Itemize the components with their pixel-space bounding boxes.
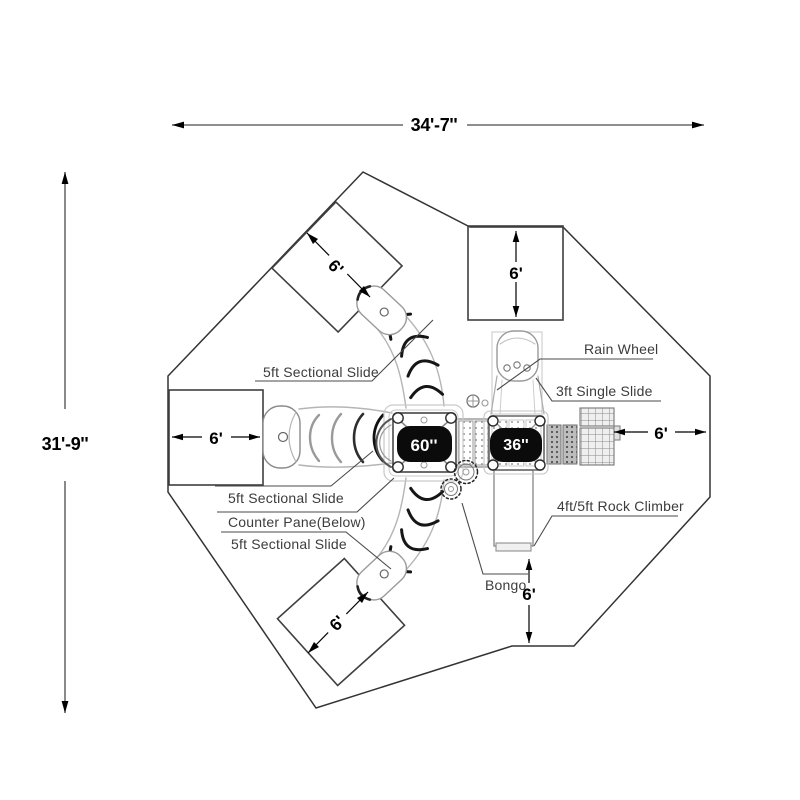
arrowhead-left xyxy=(172,122,184,129)
rock-climber-base-bar xyxy=(496,543,531,551)
slide-left-sectional xyxy=(263,406,392,468)
deck-post xyxy=(488,416,498,426)
callout-slide-upper: 5ft Sectional Slide xyxy=(255,320,433,381)
deck-post xyxy=(393,462,403,472)
callout-slide-lower-text: 5ft Sectional Slide xyxy=(231,536,347,552)
callout-single-slide-text: 3ft Single Slide xyxy=(556,383,653,399)
dimension-right: 6' xyxy=(614,420,706,443)
single-slide-hood xyxy=(491,331,544,414)
dimension-overall-height: 31'-9'' xyxy=(42,172,89,713)
rock-climber-column xyxy=(494,470,533,546)
arrowhead-right xyxy=(692,122,704,129)
play-structure: 60'' 36'' xyxy=(263,279,620,607)
dimension-left-square: 6' xyxy=(172,425,260,448)
activity-panels xyxy=(547,425,577,464)
right-dim-text: 6' xyxy=(654,424,668,443)
dimension-upper-diamond: 6' xyxy=(307,233,370,297)
rock-climber-panel xyxy=(580,408,620,465)
overall-width-text: 34'-7'' xyxy=(411,115,458,135)
deck-post xyxy=(535,460,545,470)
deck-36: 36'' xyxy=(484,411,548,474)
callout-rock-climber: 4ft/5ft Rock Climber xyxy=(534,498,684,546)
callout-counter-pane-text: Counter Pane(Below) xyxy=(228,514,366,530)
deck-36-label: 36'' xyxy=(503,437,528,454)
deck-60-label: 60'' xyxy=(411,436,438,455)
callout-slide-left-text: 5ft Sectional Slide xyxy=(228,490,344,506)
playground-plan-drawing: 60'' 36'' xyxy=(0,0,800,800)
dimension-lower-diamond: 6' xyxy=(308,592,368,653)
slide-upper-sectional xyxy=(350,279,444,408)
arrowhead-down xyxy=(62,701,69,713)
overall-height-text: 31'-9'' xyxy=(42,434,89,454)
callout-rain-wheel-text: Rain Wheel xyxy=(584,341,658,357)
top-square-dim-text: 6' xyxy=(509,264,523,283)
callout-slide-lower: 5ft Sectional Slide xyxy=(221,532,391,569)
slide-upper-exit xyxy=(350,279,413,341)
dimension-bottom: 6' xyxy=(517,559,541,643)
deck-60: 60'' xyxy=(384,405,463,481)
dimension-overall-width: 34'-7'' xyxy=(172,115,704,135)
left-square-dim-text: 6' xyxy=(209,429,223,448)
deck-post xyxy=(393,413,403,423)
plan-canvas: 60'' 36'' xyxy=(0,0,800,800)
deck-post xyxy=(535,416,545,426)
callout-rock-climber-text: 4ft/5ft Rock Climber xyxy=(557,498,684,514)
deck-post xyxy=(446,413,456,423)
rain-wheel xyxy=(467,395,488,407)
dimension-top-square: 6' xyxy=(505,231,528,317)
callout-slide-upper-text: 5ft Sectional Slide xyxy=(263,364,379,380)
arrowhead-up xyxy=(62,172,69,184)
slide-lower-sectional xyxy=(350,478,444,607)
deck-post xyxy=(488,460,498,470)
callout-single-slide: 3ft Single Slide xyxy=(536,378,661,401)
callout-bongo-text: Bongo xyxy=(485,577,526,593)
